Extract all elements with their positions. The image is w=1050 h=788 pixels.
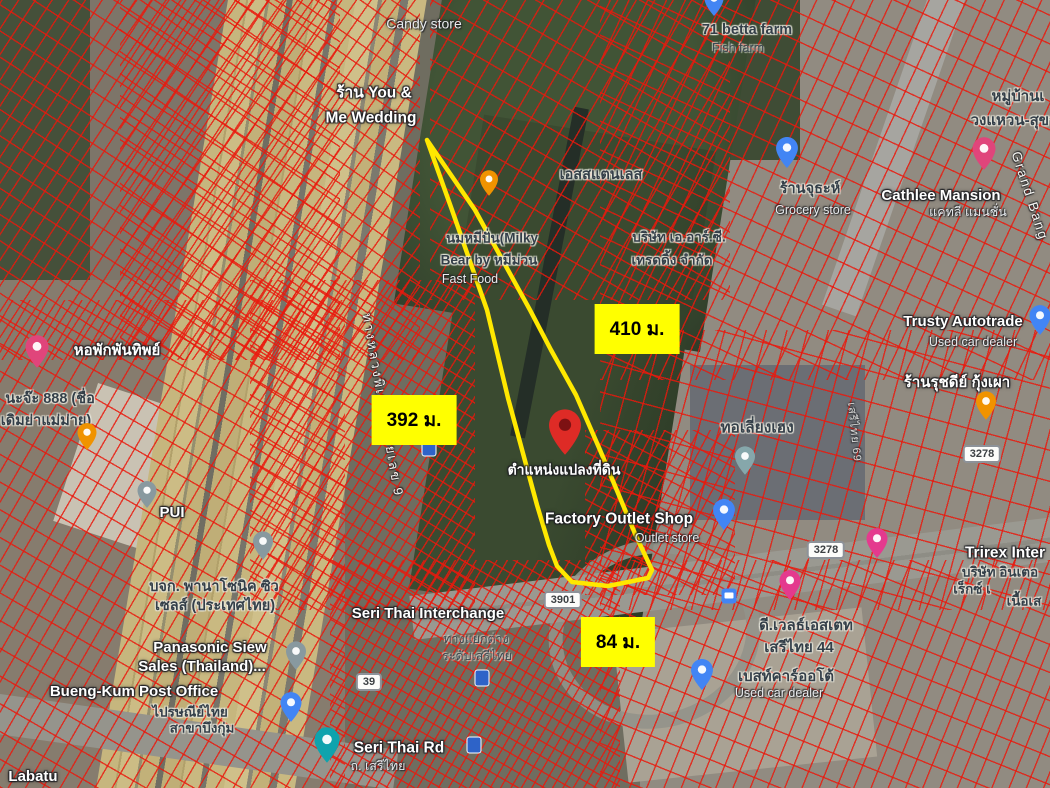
bus-stop-icon <box>722 589 737 604</box>
poi-bestcar-auto-sub: Used car dealer <box>735 687 823 701</box>
poi-trirex[interactable]: Trirex Inter <box>965 544 1045 561</box>
road-flag-pin[interactable] <box>315 727 340 763</box>
poi-cathlee-mansion-th: แคทลี แมนชั่น <box>929 206 1007 220</box>
measurement-box-392: 392 ม. <box>372 395 457 445</box>
poi-najah-888[interactable]: นะจ๊ะ 888 (ชื่อ <box>5 392 95 408</box>
poi-post-office[interactable]: Bueng-Kum Post Office <box>50 684 218 701</box>
poi-bestcar-auto[interactable]: เบสท์คาร์ออโต้ <box>738 669 834 686</box>
poi-serithai-rd-th: ถ. เสรีไทย <box>351 760 406 774</box>
poi-you-me-wedding[interactable]: Me Wedding <box>326 109 417 126</box>
poi-panasonic-en[interactable]: Sales (Thailand)... <box>138 659 266 676</box>
poi-taoliangheng[interactable]: ทอเลี่ยงเฮง <box>720 419 793 436</box>
route-shield-icon <box>475 670 490 687</box>
route-badge-3278: 3278 <box>963 445 1001 463</box>
generic-teal-pin[interactable] <box>735 446 755 475</box>
generic-gray-pin[interactable] <box>253 531 273 560</box>
route-badge-3278: 3278 <box>807 541 845 559</box>
poi-trirex-th: เร็กซ์ เ <box>953 583 991 598</box>
satellite-map[interactable]: ทางหลวงพิเศษหมายเลข 9 Grand Bang เสรีไทย… <box>0 0 1050 788</box>
plot-location-pin[interactable] <box>549 409 581 455</box>
poi-dwealth-estate[interactable]: ดี.เวลธ์เอสเตท <box>759 618 853 635</box>
poi-arc-trading[interactable]: เทรดดิ้ง จำกัด <box>631 254 712 269</box>
map-terrain-patch <box>690 365 865 520</box>
restaurant-pin[interactable] <box>480 170 498 196</box>
poi-serithai-interchange-th: ทางแยกต่าง <box>443 633 509 647</box>
poi-panasonic-th[interactable]: บจก. พานาโซนิค ซิว <box>149 580 279 596</box>
generic-gray-pin[interactable] <box>138 481 157 508</box>
poi-ruchdee-grill[interactable]: ร้านรุชดีย์ กุ้งเผา <box>904 375 1010 392</box>
generic-pink-pin[interactable] <box>867 528 888 558</box>
route-badge-partial: 39 <box>356 673 382 691</box>
route-shield-icon <box>467 737 482 754</box>
poi-panasonic-th[interactable]: เซลส์ (ประเทศไทย) <box>155 599 275 615</box>
poi-trirex-th: เนื้อเส <box>1007 595 1042 610</box>
measurement-box-410: 410 ม. <box>595 304 680 354</box>
poi-candy-store-sub[interactable]: Candy store <box>386 16 461 31</box>
poi-arc-trading[interactable]: บริษัท เอ.อาร์.ซี. <box>632 231 725 246</box>
poi-pui[interactable]: PUI <box>159 505 184 522</box>
grocery-cart-pin[interactable] <box>776 137 798 168</box>
poi-serithai-interchange[interactable]: Seri Thai Interchange <box>352 606 505 623</box>
measurement-box-84: 84 ม. <box>581 617 655 667</box>
poi-betta-farm-sub: Fish farm <box>712 42 764 56</box>
shopping-bag-pin[interactable] <box>713 499 735 530</box>
poi-grocery[interactable]: ร้านจุธะห์ <box>780 182 841 198</box>
poi-trusty-autotrade[interactable]: Trusty Autotrade <box>903 314 1022 331</box>
poi-serithai-interchange-th: ระดับเสรีไทย <box>442 650 512 664</box>
poi-post-office-th: ไปรษณีย์ไทย <box>152 706 228 721</box>
poi-factory-outlet[interactable]: Factory Outlet Shop <box>545 510 693 527</box>
poi-stainless-shop[interactable]: เอสสแตนเลส <box>560 168 643 184</box>
poi-labatu[interactable]: Labatu <box>8 769 57 786</box>
poi-dormitory[interactable]: หอพักพันทิพย์ <box>74 343 161 360</box>
poi-trusty-autotrade-sub: Used car dealer <box>929 336 1017 350</box>
car-dealer-pin[interactable] <box>1030 305 1050 335</box>
generic-pink-pin[interactable] <box>780 570 801 600</box>
post-office-pin[interactable] <box>281 692 302 722</box>
poi-factory-outlet-sub: Outlet store <box>635 532 700 546</box>
plot-position-label: ตำแหน่งแปลงที่ดิน <box>508 462 621 477</box>
poi-milky-bear[interactable]: Bear by หมีม่วน <box>441 254 538 269</box>
poi-grocery-sub: Grocery store <box>775 204 851 218</box>
poi-cathlee-mansion[interactable]: Cathlee Mansion <box>881 188 1000 205</box>
route-badge-3901: 3901 <box>544 591 582 609</box>
car-dealer-pin[interactable] <box>691 659 713 690</box>
poi-post-office-th: สาขาบึงกุ่ม <box>170 722 235 737</box>
poi-village[interactable]: หมู่บ้านเ <box>991 89 1044 106</box>
poi-trirex-th: บริษัท อินเตอ <box>962 566 1038 581</box>
lodging-pin[interactable] <box>973 137 996 170</box>
generic-gray-pin[interactable] <box>286 641 306 670</box>
lodging-pin[interactable] <box>26 335 49 368</box>
poi-village[interactable]: วงแหวน-สุขา <box>971 113 1050 130</box>
poi-you-me-wedding[interactable]: ร้าน You & <box>336 84 412 101</box>
poi-serithai-rd[interactable]: Seri Thai Rd <box>354 739 444 756</box>
poi-betta-farm[interactable]: 71 betta farm <box>702 23 792 39</box>
restaurant-pin[interactable] <box>976 391 996 420</box>
generic-blue-pin[interactable] <box>705 0 724 16</box>
poi-panasonic-en[interactable]: Panasonic Siew <box>153 640 266 657</box>
poi-dwealth-estate[interactable]: เสรีไทย 44 <box>764 640 833 657</box>
restaurant-pin[interactable] <box>78 423 97 450</box>
poi-milky-bear-sub: Fast Food <box>442 273 498 287</box>
poi-milky-bear[interactable]: นมหมีปั่น(Milky <box>446 232 538 247</box>
